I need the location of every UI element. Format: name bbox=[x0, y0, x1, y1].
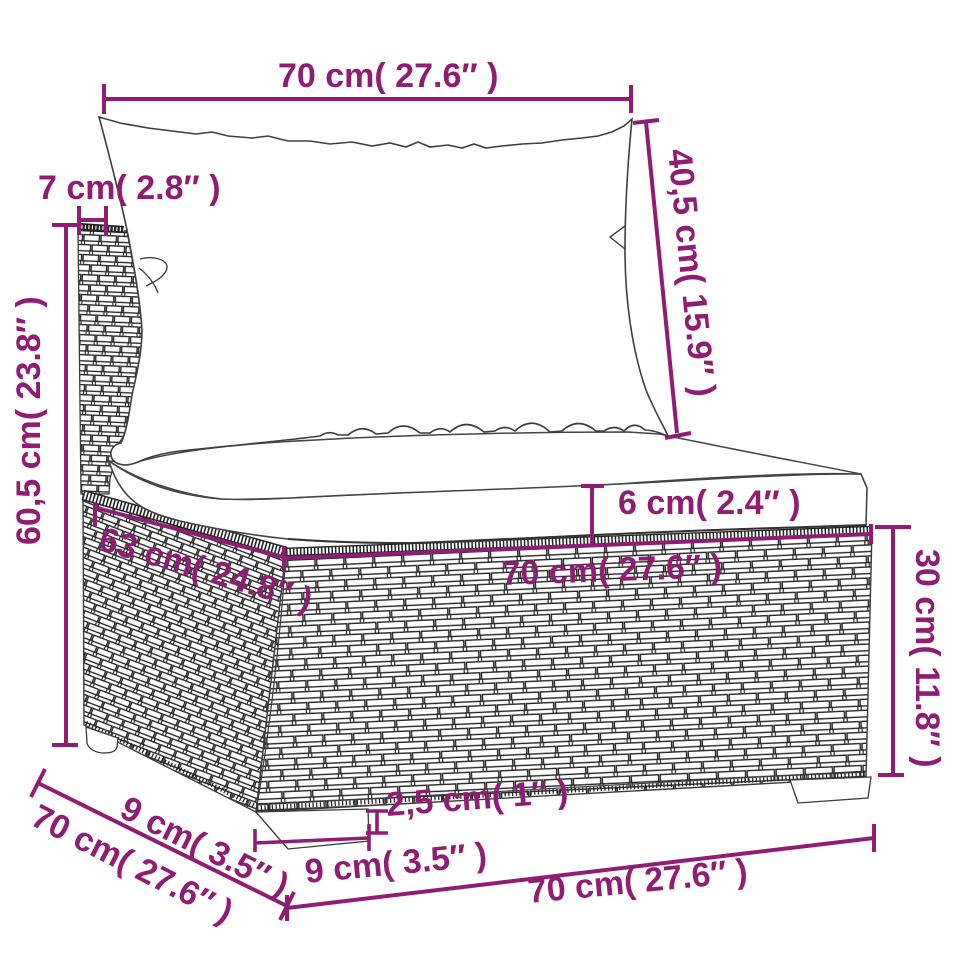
svg-text:70 cm( 27.6″ ): 70 cm( 27.6″ ) bbox=[278, 57, 498, 95]
svg-text:7 cm( 2.8″ ): 7 cm( 2.8″ ) bbox=[38, 169, 221, 207]
svg-text:60,5 cm( 23.8″ ): 60,5 cm( 23.8″ ) bbox=[10, 296, 48, 545]
svg-text:30 cm( 11.8″ ): 30 cm( 11.8″ ) bbox=[908, 549, 946, 768]
svg-text:6 cm( 2.4″ ): 6 cm( 2.4″ ) bbox=[618, 484, 801, 522]
svg-text:70 cm( 27.6″ ): 70 cm( 27.6″ ) bbox=[501, 547, 723, 593]
